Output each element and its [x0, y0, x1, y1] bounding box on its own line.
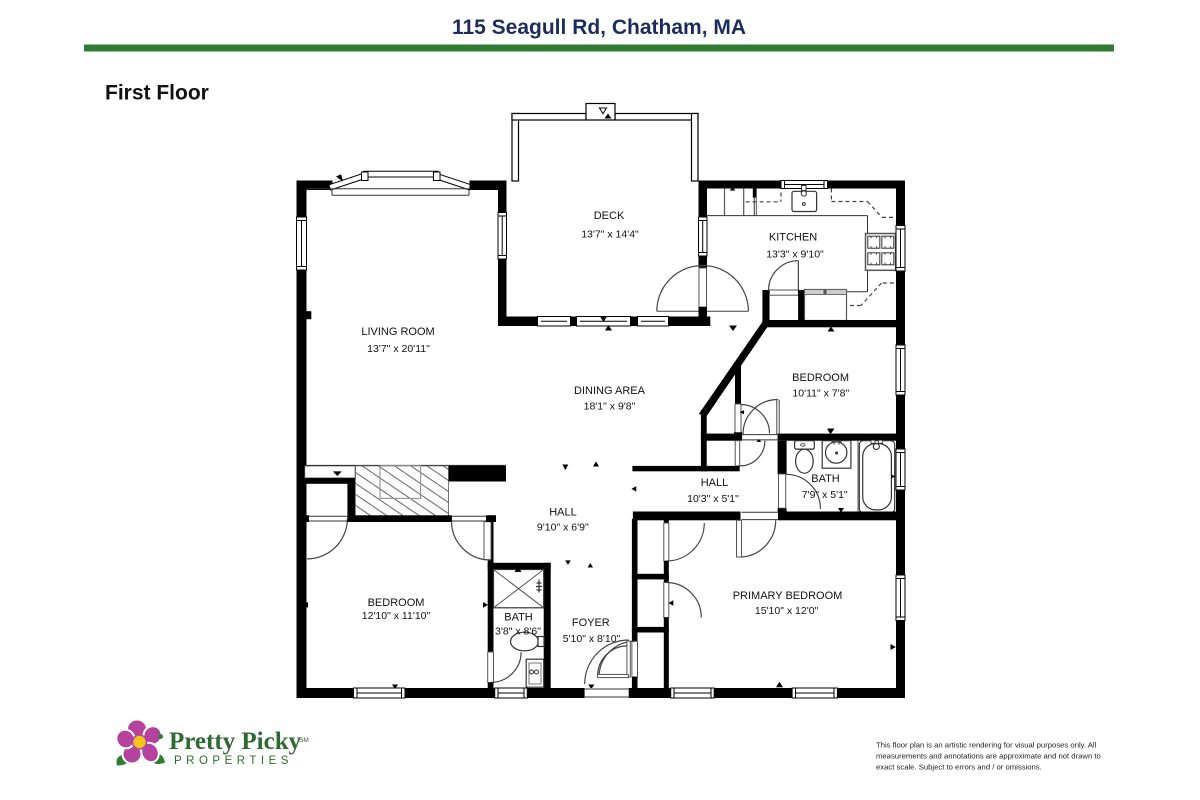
svg-text:SM: SM	[299, 737, 309, 744]
svg-text:exact scale. Subject to errors: exact scale. Subject to errors and / or …	[876, 763, 1042, 772]
svg-text:DINING AREA: DINING AREA	[574, 385, 646, 397]
svg-text:KITCHEN: KITCHEN	[769, 232, 817, 244]
svg-text:Pretty Picky: Pretty Picky	[169, 728, 302, 755]
svg-text:PROPERTIES: PROPERTIES	[174, 755, 293, 767]
svg-text:This floor plan is an artistic: This floor plan is an artistic rendering…	[876, 741, 1097, 750]
svg-text:measurements and annotations a: measurements and annotations are approxi…	[876, 752, 1101, 761]
svg-text:PRIMARY BEDROOM: PRIMARY BEDROOM	[733, 590, 843, 602]
svg-text:18'1" x 9'8": 18'1" x 9'8"	[584, 401, 636, 413]
svg-text:12'10" x 11'10": 12'10" x 11'10"	[362, 610, 431, 622]
svg-text:9'10" x 6'9": 9'10" x 6'9"	[537, 522, 589, 534]
svg-text:13'7" x 20'11": 13'7" x 20'11"	[367, 343, 430, 355]
svg-text:115 Seagull Rd, Chatham, MA: 115 Seagull Rd, Chatham, MA	[452, 16, 746, 39]
svg-text:HALL: HALL	[549, 507, 577, 519]
svg-text:13'7" x 14'4": 13'7" x 14'4"	[581, 229, 639, 241]
svg-text:BEDROOM: BEDROOM	[368, 597, 425, 609]
svg-text:BATH: BATH	[504, 612, 533, 624]
svg-text:7'9" x 5'1": 7'9" x 5'1"	[802, 489, 848, 501]
svg-text:BEDROOM: BEDROOM	[792, 372, 849, 384]
svg-text:FOYER: FOYER	[572, 617, 610, 629]
svg-text:DECK: DECK	[594, 210, 625, 222]
svg-text:10'3" x 5'1": 10'3" x 5'1"	[687, 493, 739, 505]
svg-text:13'3" x 9'10": 13'3" x 9'10"	[766, 249, 824, 261]
svg-text:3'8" x 8'6": 3'8" x 8'6"	[495, 626, 541, 638]
svg-text:HALL: HALL	[701, 477, 729, 489]
svg-text:First Floor: First Floor	[105, 82, 209, 105]
svg-text:LIVING ROOM: LIVING ROOM	[361, 326, 434, 338]
svg-text:10'11" x 7'8": 10'11" x 7'8"	[792, 388, 849, 400]
svg-text:15'10" x 12'0": 15'10" x 12'0"	[755, 605, 819, 617]
svg-text:BATH: BATH	[811, 473, 840, 485]
